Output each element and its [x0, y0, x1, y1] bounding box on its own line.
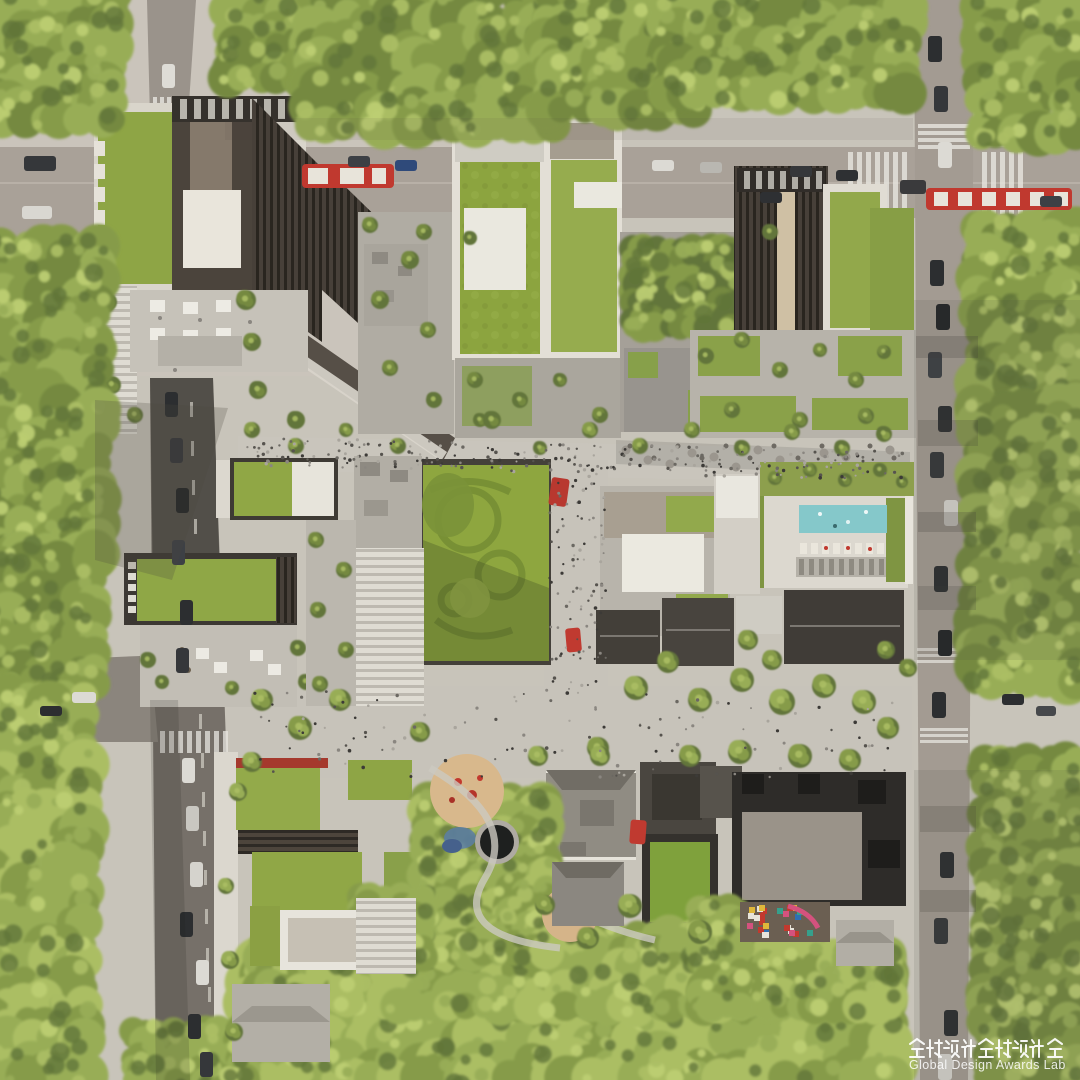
- svg-text:Global Design Awards Lab: Global Design Awards Lab: [909, 1058, 1066, 1072]
